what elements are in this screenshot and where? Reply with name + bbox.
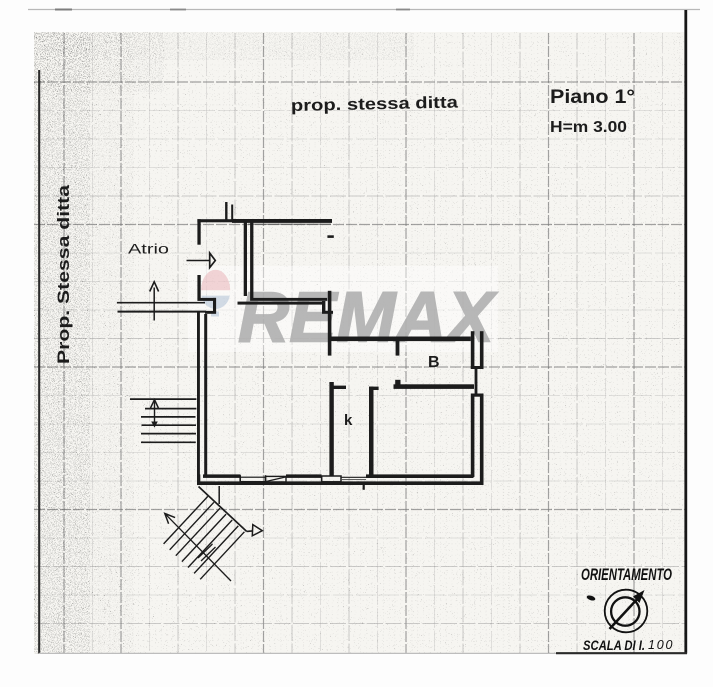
svg-text:prop. stessa ditta: prop. stessa ditta	[291, 93, 459, 115]
svg-text:100: 100	[648, 638, 674, 652]
svg-text:Atrio: Atrio	[128, 242, 169, 257]
svg-text:Prop. Stessa ditta: Prop. Stessa ditta	[55, 184, 73, 364]
svg-text:REMAX: REMAX	[238, 279, 498, 358]
svg-text:Piano 1°: Piano 1°	[550, 87, 635, 108]
svg-text:k: k	[344, 412, 353, 429]
svg-text:H=m 3.00: H=m 3.00	[550, 119, 627, 136]
svg-text:B: B	[428, 354, 440, 371]
svg-text:SCALA DI I.: SCALA DI I.	[583, 638, 645, 653]
svg-text:ORIENTAMENTO: ORIENTAMENTO	[581, 566, 672, 584]
